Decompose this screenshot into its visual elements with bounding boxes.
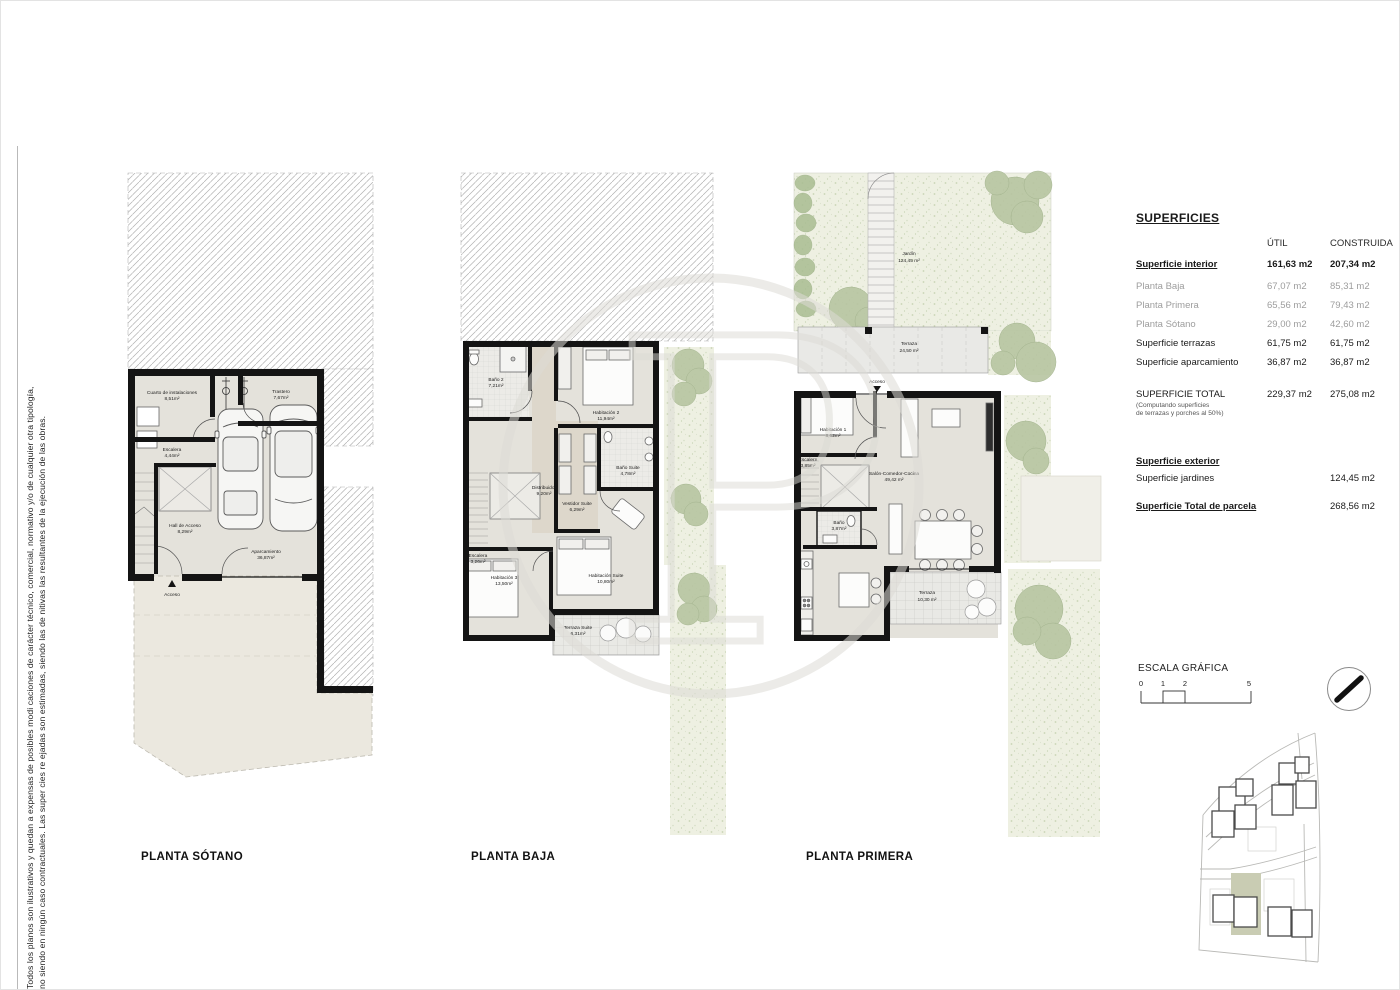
- floorplan-primera: Jardín 124,45 m² Terraza 24,50 m² Acceso: [789, 169, 1111, 849]
- plan-title-primera: PLANTA PRIMERA: [806, 851, 913, 863]
- scale-bar: 0 1 2 5: [1138, 677, 1254, 707]
- table-row: Planta Baja 67,07 m2 85,31 m2: [1134, 281, 1396, 295]
- room-area: 10,80m²: [597, 579, 615, 585]
- room-label: Terraza Suite: [564, 625, 593, 631]
- room-label: Baño: [833, 520, 845, 526]
- table-parcela-row: Superficie Total de parcela 268,56 m2: [1134, 501, 1396, 515]
- room-area: 124,45 m²: [898, 258, 920, 264]
- garden-strip: [664, 347, 726, 835]
- side-gardens: [1004, 395, 1101, 837]
- left-rule-line: [17, 146, 18, 989]
- room-label: Escalera: [163, 447, 182, 453]
- room-label: Trastero: [272, 389, 290, 395]
- room-area: 36,87m²: [257, 555, 275, 561]
- terrace-suite: [553, 615, 659, 655]
- north-arrow: [1323, 663, 1375, 715]
- access-marker: Acceso: [869, 379, 885, 392]
- room-label: Habitación 1: [820, 427, 847, 433]
- plan-title-sotano: PLANTA SÓTANO: [141, 851, 243, 863]
- drawing-sheet: Todos los planos son ilustrativos y qued…: [0, 0, 1400, 990]
- elevator-shaft: [159, 467, 211, 511]
- table-row: Superficie aparcamiento 36,87 m2 36,87 m…: [1134, 357, 1396, 371]
- room-label: Jardín: [902, 251, 916, 257]
- disclaimer-line-2: no siendo en ningún caso contractuales. …: [37, 387, 49, 989]
- room-area: 24,50 m²: [900, 348, 919, 354]
- room-area: 4,44m²: [165, 453, 180, 459]
- room-area: 6,29m²: [570, 507, 585, 513]
- room-area: 7,67m²: [274, 395, 289, 401]
- room-area: 4,78m²: [621, 471, 636, 477]
- room-label: Terraza: [919, 590, 935, 596]
- room-area: 7,21m²: [489, 383, 504, 389]
- room-area: 8,29m²: [178, 529, 193, 535]
- room-area: 3,87m²: [832, 526, 847, 532]
- scale-bar-label: ESCALA GRÁFICA: [1138, 663, 1228, 674]
- site-key-plan: [1186, 719, 1398, 990]
- room-label: Terraza: [901, 341, 917, 347]
- table-row: Planta Primera 65,56 m2 79,43 m2: [1134, 300, 1396, 314]
- disclaimer-text: Todos los planos son ilustrativos y qued…: [25, 387, 48, 989]
- disclaimer-line-1: Todos los planos son ilustrativos y qued…: [25, 387, 37, 989]
- col-header-construida: CONSTRUIDA: [1330, 238, 1396, 249]
- scale-tick: 1: [1161, 679, 1165, 688]
- room-label: Habitación 2: [593, 410, 620, 416]
- scale-tick: 5: [1247, 679, 1251, 688]
- room-area: 9,20m²: [537, 491, 552, 497]
- scale-tick: 2: [1183, 679, 1187, 688]
- room-label: Salón-Comedor-Cocina: [869, 471, 919, 477]
- table-header-row: ÚTIL CONSTRUIDA: [1134, 238, 1396, 252]
- room-area: 13,50m²: [495, 581, 513, 587]
- floorplan-baja: Baño 2 7,21m² Habitación 2 11,94m² Distr…: [456, 169, 766, 844]
- plan-title-baja: PLANTA BAJA: [471, 851, 555, 863]
- table-title: SUPERFICIES: [1136, 211, 1219, 225]
- room-label: Aparcamiento: [251, 549, 281, 555]
- room-area: 11,94m²: [597, 416, 615, 422]
- col-header-util: ÚTIL: [1267, 238, 1327, 249]
- room-area: 3,26m²: [471, 559, 486, 565]
- table-total-note: de terrazas y porches al 50%): [1134, 410, 1396, 424]
- table-row: Superficie terrazas 61,75 m2 61,75 m2: [1134, 338, 1396, 352]
- room-label: Escalera: [799, 457, 818, 463]
- excavation-hatch: [461, 173, 713, 341]
- room-label: Baño Suite: [616, 465, 640, 471]
- room-area: 49,42 m²: [885, 477, 904, 483]
- table-row: Superficie jardines 124,45 m2: [1134, 473, 1396, 487]
- room-label: Escalera: [469, 553, 488, 559]
- room-area: 10,30 m²: [918, 597, 937, 603]
- table-row: Superficie interior 161,63 m2 207,34 m2: [1134, 259, 1396, 273]
- lower-terrace: Terraza 10,30 m²: [890, 572, 1001, 624]
- room-label: Cuarto de instalaciones: [147, 390, 198, 396]
- upper-terrace: Terraza 24,50 m²: [798, 327, 988, 373]
- room-label: Vestidor Suite: [562, 501, 592, 507]
- access-label: Acceso: [164, 592, 180, 598]
- room-label: Baño 2: [488, 377, 504, 383]
- car: [215, 409, 266, 529]
- room-label: Habitación Suite: [589, 573, 624, 579]
- table-row: Planta Sótano 29,00 m2 42,60 m2: [1134, 319, 1396, 333]
- garden-stairs: [868, 173, 894, 331]
- table-exterior-header: Superficie exterior: [1134, 456, 1396, 470]
- room-label: Distribuidor: [532, 485, 557, 491]
- floorplan-sotano: Cuarto de instalaciones 8,51m² Trastero …: [126, 169, 396, 794]
- room-area: 6,31m²: [571, 631, 586, 637]
- room-area: 8,62m²: [826, 433, 841, 439]
- room-area: 3,85m²: [801, 463, 816, 469]
- room-area: 8,51m²: [165, 396, 180, 402]
- room-label: Hall de Acceso: [169, 523, 201, 529]
- table-total-row: SUPERFICIE TOTAL 229,37 m2 275,08 m2: [1134, 389, 1396, 403]
- room-label: Habitación 3: [491, 575, 518, 581]
- access-label: Acceso: [869, 379, 885, 385]
- scale-tick: 0: [1139, 679, 1143, 688]
